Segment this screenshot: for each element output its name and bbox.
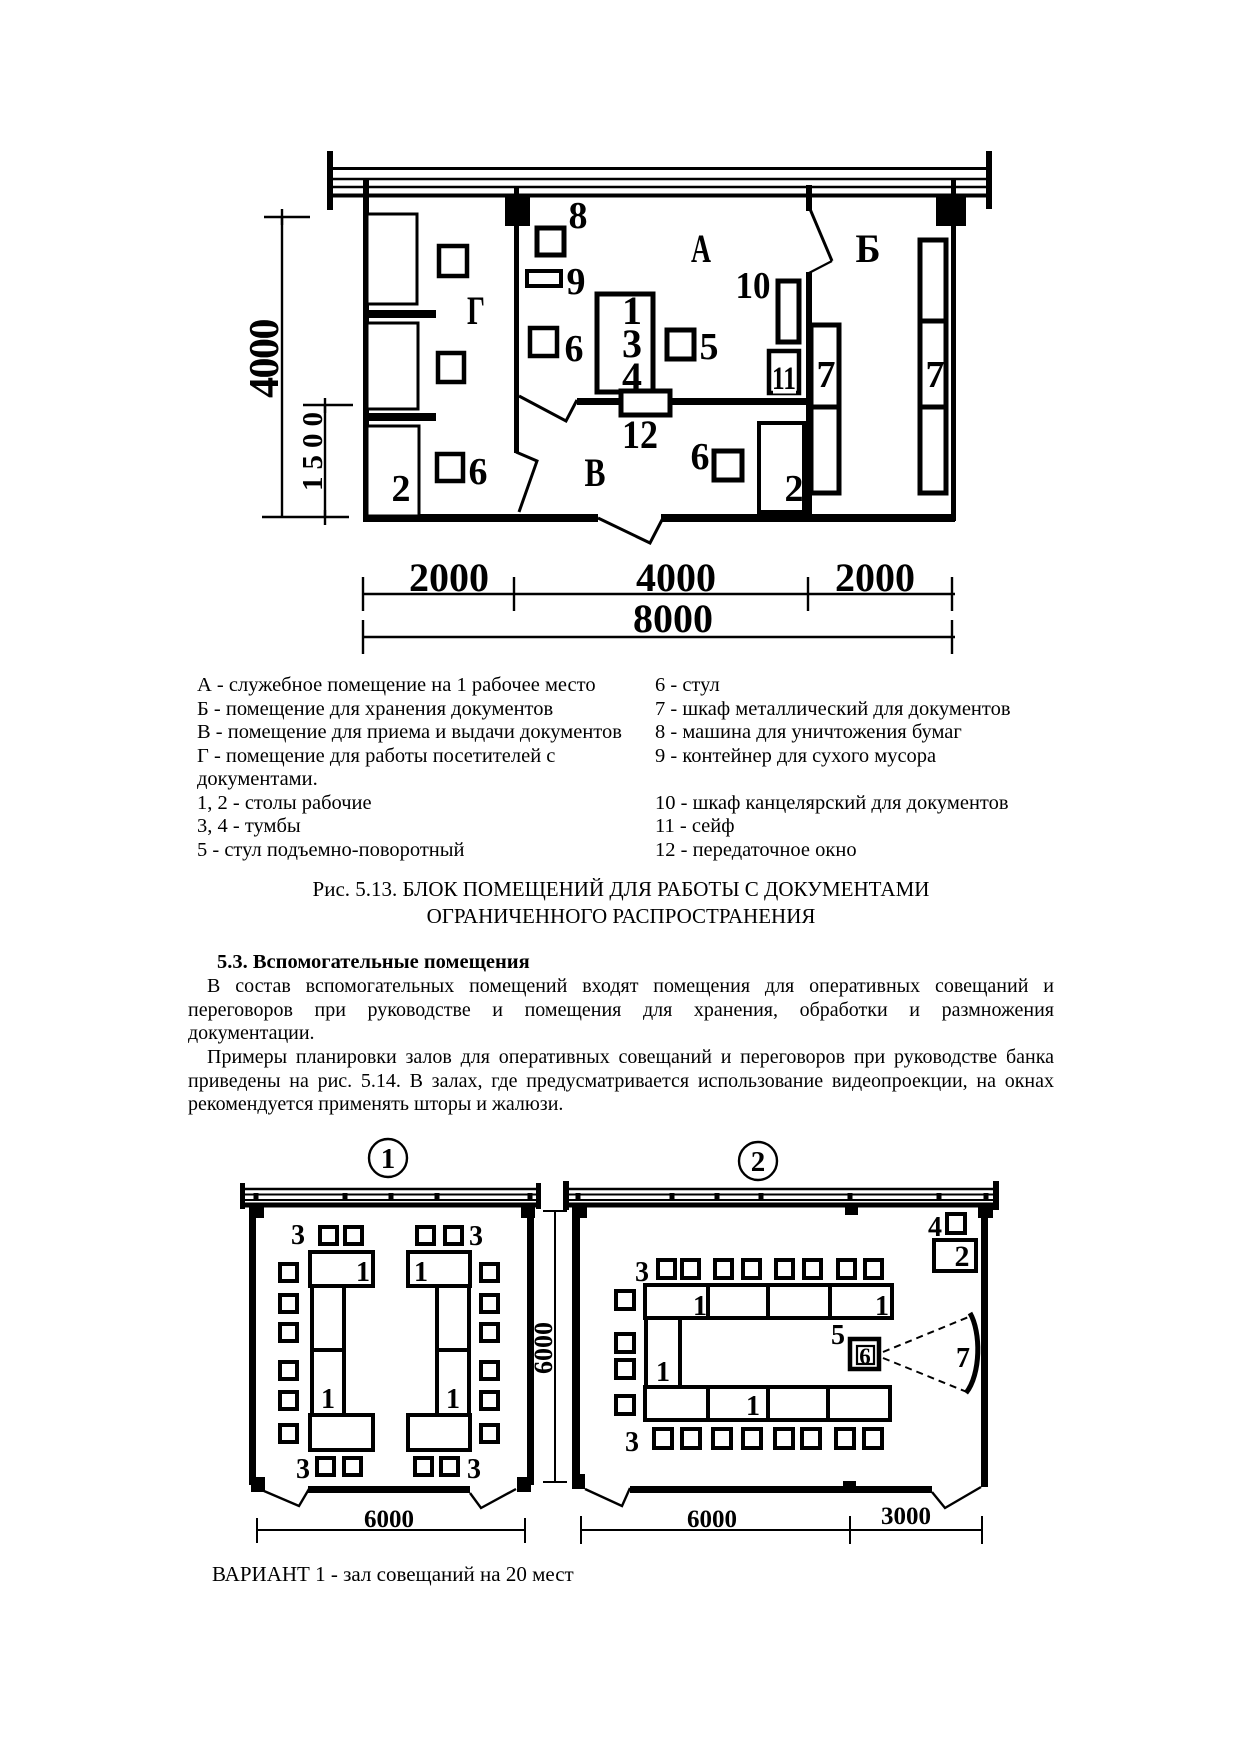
svg-text:3: 3 [296,1454,310,1485]
svg-text:1: 1 [381,1143,396,1175]
svg-text:7: 7 [817,354,836,396]
svg-text:2000: 2000 [409,555,489,600]
svg-text:6000: 6000 [364,1506,414,1533]
svg-text:2: 2 [785,468,804,510]
svg-text:В: В [585,450,606,495]
svg-text:6: 6 [691,436,710,478]
svg-text:1: 1 [321,1384,335,1415]
svg-text:2: 2 [392,468,411,510]
svg-text:6: 6 [859,1344,871,1369]
svg-text:2: 2 [955,1240,970,1273]
svg-text:3: 3 [625,1427,639,1458]
svg-text:4000: 4000 [242,320,288,399]
svg-text:6: 6 [565,328,584,370]
svg-text:Б: Б [856,226,881,271]
svg-text:12: 12 [622,412,658,457]
svg-text:1: 1 [414,1257,428,1288]
svg-text:3: 3 [469,1221,483,1252]
svg-text:10: 10 [736,265,771,307]
svg-text:6000: 6000 [687,1506,737,1533]
svg-text:Г: Г [467,288,485,333]
svg-text:2: 2 [751,1146,766,1178]
svg-text:3: 3 [291,1220,305,1251]
svg-text:1: 1 [356,1257,370,1288]
svg-text:4000: 4000 [636,555,716,600]
svg-text:А: А [691,226,711,271]
svg-text:7: 7 [956,1343,970,1374]
svg-text:5: 5 [831,1320,845,1351]
svg-text:8000: 8000 [633,596,713,641]
svg-text:5: 5 [700,326,719,368]
svg-text:1: 1 [446,1384,460,1415]
svg-text:3: 3 [467,1454,481,1485]
svg-text:1500: 1500 [297,405,329,491]
svg-text:3000: 3000 [881,1503,931,1530]
svg-text:1: 1 [656,1357,670,1388]
svg-text:6: 6 [469,451,488,493]
svg-text:9: 9 [567,261,586,303]
svg-text:1: 1 [746,1391,760,1422]
svg-text:1: 1 [875,1291,889,1322]
svg-text:8: 8 [569,195,588,237]
svg-text:6000: 6000 [529,1322,558,1374]
svg-text:2000: 2000 [835,555,915,600]
svg-text:7: 7 [926,354,945,396]
svg-text:1: 1 [693,1291,707,1322]
